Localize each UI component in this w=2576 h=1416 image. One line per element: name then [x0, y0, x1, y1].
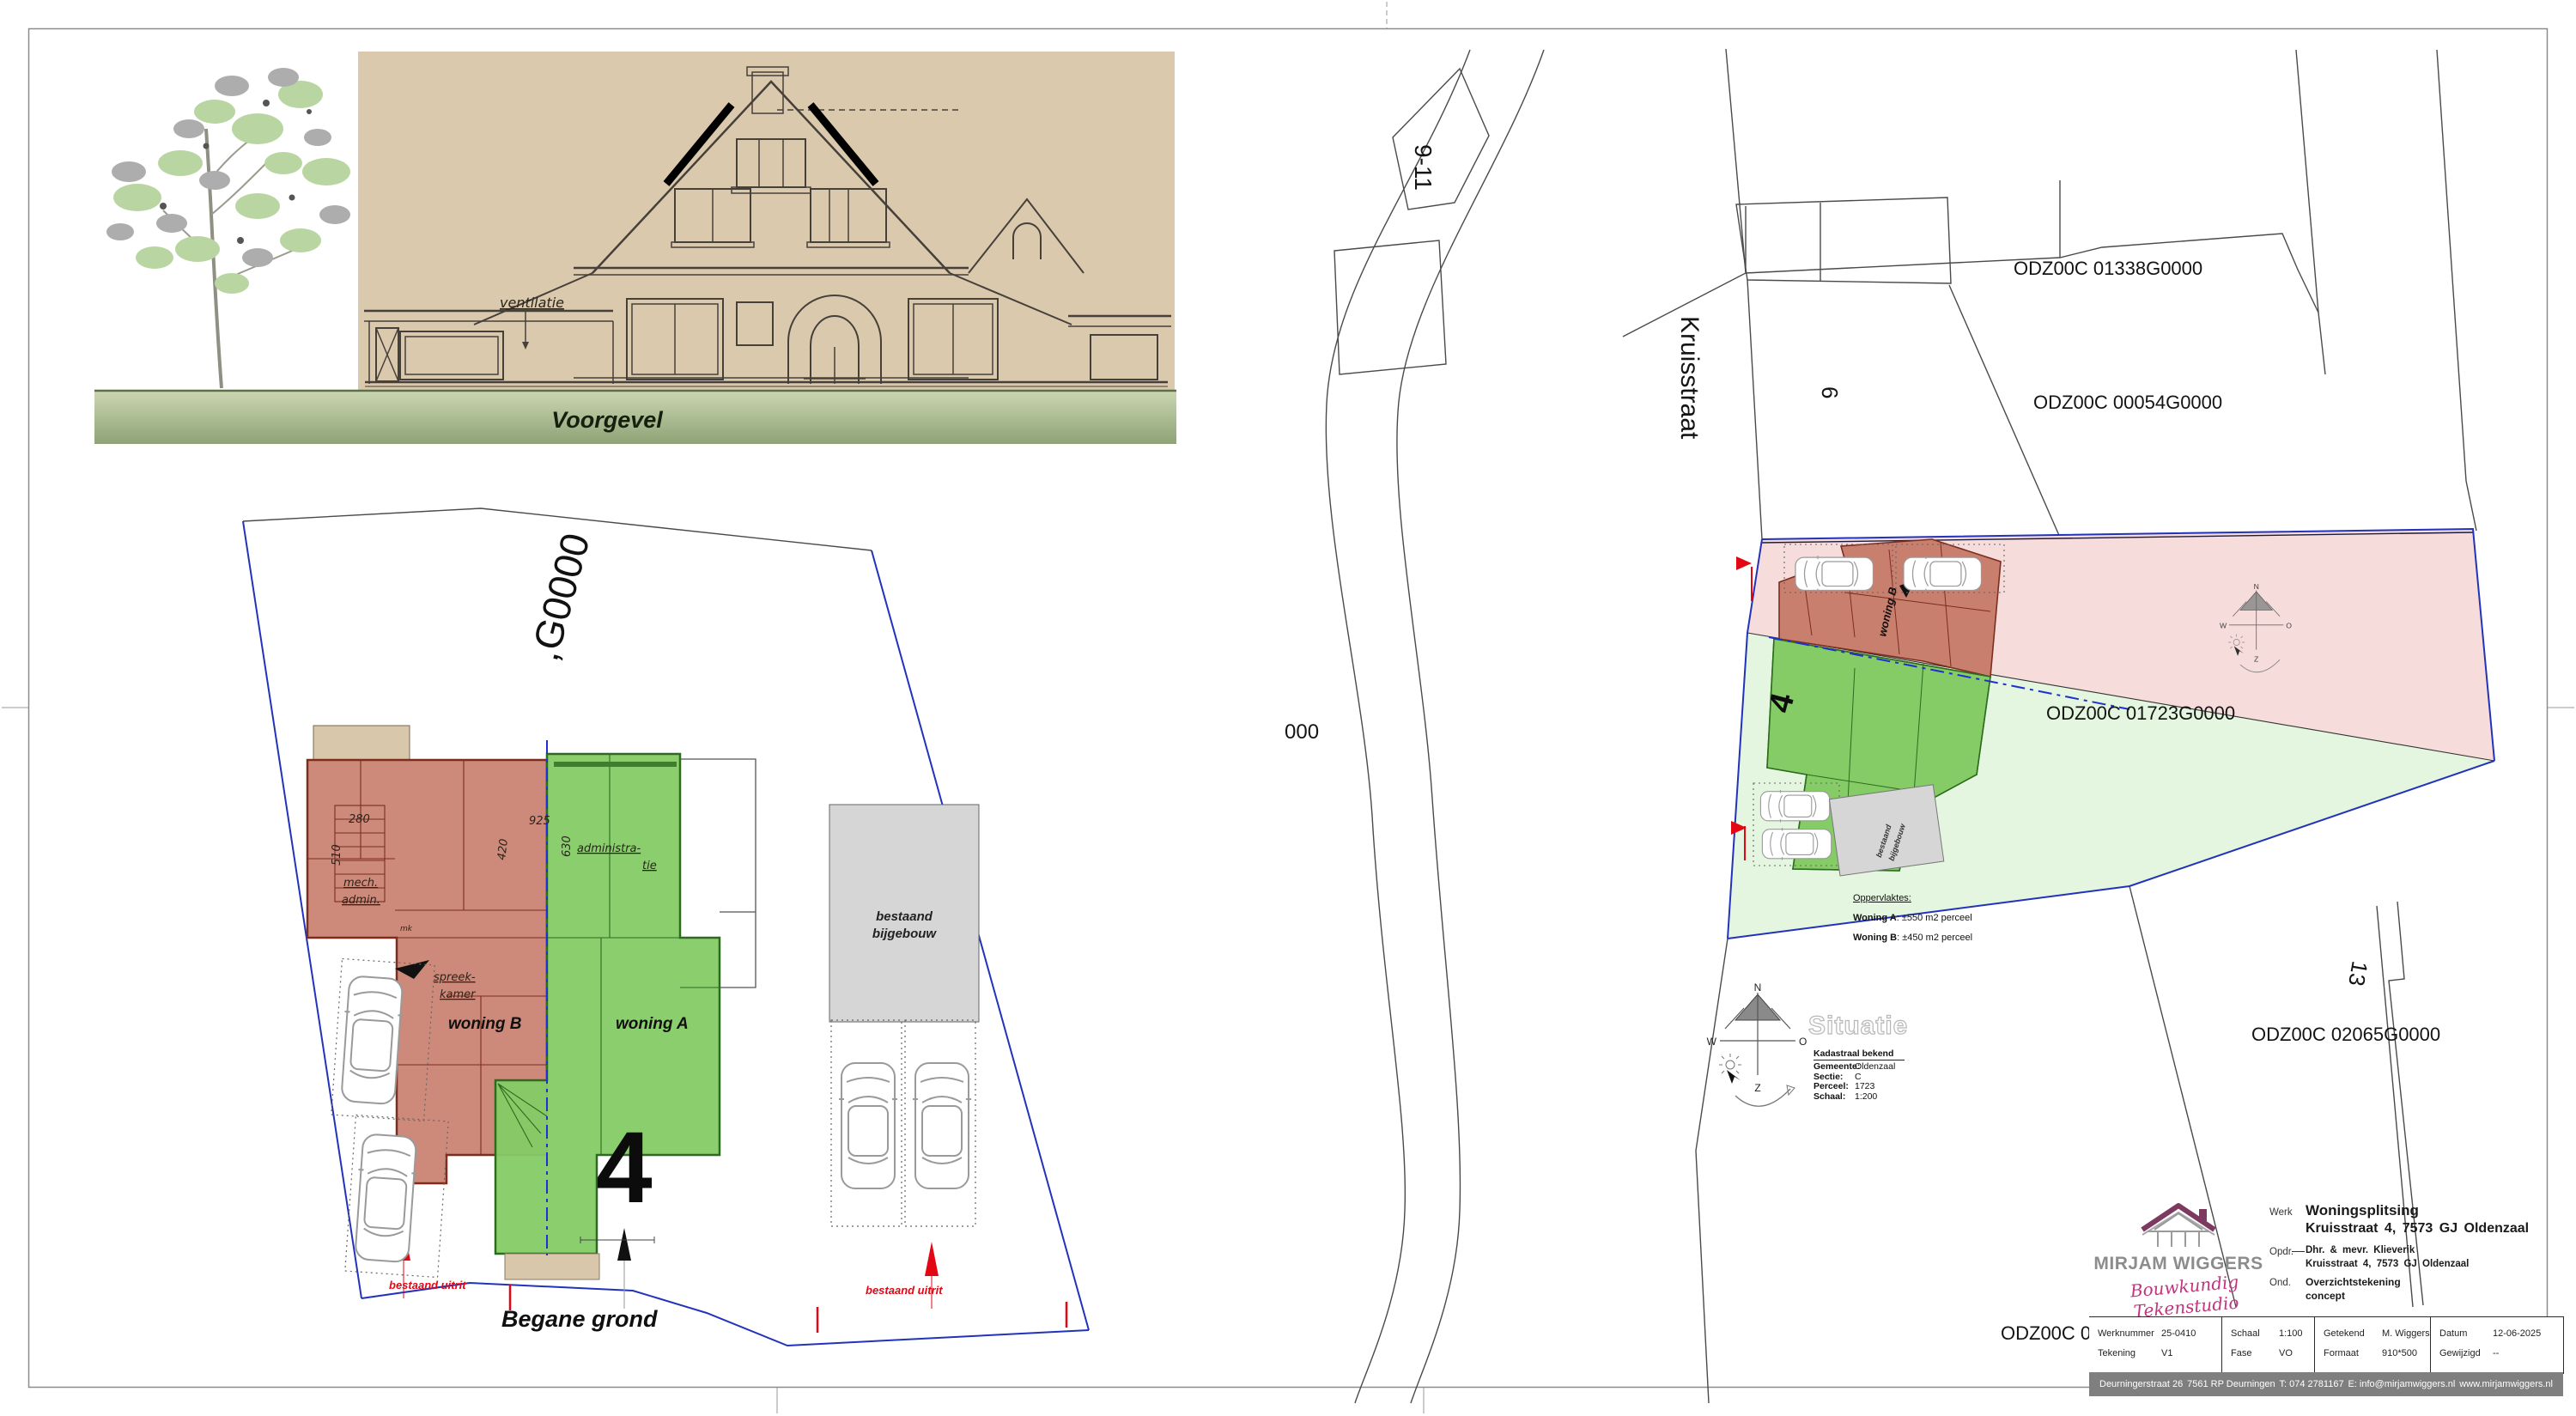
tb-field-label: Tekening — [2098, 1344, 2161, 1364]
svg-text:administra-: administra- — [577, 842, 641, 855]
tb-col-4: Datum12-06-2025 Gewijzigd-- — [2430, 1317, 2563, 1373]
tb-field-value: V1 — [2161, 1344, 2221, 1364]
tb-field-value: 12-06-2025 — [2493, 1324, 2563, 1344]
elevation-caption: Voorgevel — [551, 407, 663, 433]
tb-field-value: 910*500 — [2382, 1344, 2430, 1364]
tb-field-label: Gewijzigd — [2439, 1344, 2493, 1364]
tb-field-label: Formaat — [2324, 1344, 2382, 1364]
terrace — [505, 1254, 599, 1279]
tb-field-value: M. Wiggers — [2382, 1324, 2430, 1344]
tb-field: Schaal1:100 — [2231, 1324, 2314, 1344]
areas-heading: Oppervlaktes: — [1853, 893, 1911, 903]
parcel-label: ODZ00C 02065G0000 — [2251, 1024, 2440, 1045]
svg-text:630: 630 — [561, 836, 574, 857]
elevation-panel: ventilatie Voorgevel — [94, 52, 1176, 444]
title-block-table: Werknummer25-0410 TekeningV1 Schaal1:100… — [2089, 1316, 2564, 1374]
tb-field-label: Fase — [2231, 1344, 2279, 1364]
uitrit-label: bestaand uitrit — [389, 1279, 466, 1291]
svg-text:N: N — [1754, 981, 1762, 994]
parcel-label-partial: ODZ00C 0 — [2001, 1322, 2091, 1344]
area-woning-b: Woning B: ±450 m2 perceel — [1853, 933, 1999, 943]
kadastraal-table: Kadastraal bekend Gemeente:Oldenzaal Sec… — [1814, 1048, 1905, 1102]
tb-field: Datum12-06-2025 — [2439, 1324, 2563, 1344]
svg-text:Z: Z — [1754, 1082, 1760, 1094]
areas-block: Oppervlaktes: Woning A: ±550 m2 perceel … — [1853, 893, 1999, 943]
leader-line — [2292, 1251, 2305, 1252]
ventilatie-annotation: ventilatie — [500, 295, 564, 311]
svg-text:kamer: kamer — [440, 988, 477, 1001]
floorplan-caption: Begane grond — [501, 1306, 658, 1332]
tb-col-3: GetekendM. Wiggers Formaat910*500 — [2314, 1317, 2430, 1373]
tb-field: FaseVO — [2231, 1344, 2314, 1364]
svg-text:N: N — [2254, 582, 2259, 591]
car — [338, 975, 405, 1104]
uitrit-label: bestaand uitrit — [866, 1284, 943, 1297]
parcel-partial-label: ,G0000 — [521, 528, 598, 665]
tb-field-value: 25-0410 — [2161, 1324, 2221, 1344]
car — [913, 1063, 971, 1188]
ond-label: Ond. — [2269, 1278, 2291, 1288]
opdr-label: Opdr. — [2269, 1247, 2293, 1257]
footer-city: 7561 RP Deurningen — [2187, 1379, 2275, 1389]
area-a-label: Woning A — [1853, 913, 1897, 923]
kadastraal-row: Schaal:1:200 — [1814, 1092, 1905, 1103]
svg-text:spreek-: spreek- — [434, 971, 476, 984]
car — [1795, 556, 1874, 592]
ond-line1: Overzichtstekening — [2306, 1276, 2401, 1288]
exit-arrows — [397, 1226, 939, 1309]
tb-field-label: Getekend — [2324, 1324, 2382, 1344]
tb-field: TekeningV1 — [2098, 1344, 2221, 1364]
kadastraal-heading: Kadastraal bekend — [1814, 1048, 1905, 1060]
situatie-watermark: Situatie — [1808, 1012, 1908, 1041]
tree-illustration — [106, 68, 350, 388]
footer-phone: T: 074 2781167 — [2280, 1379, 2344, 1389]
title-block: MIRJAM WIGGERS Bouwkundig Tekenstudio We… — [2089, 1194, 2563, 1400]
svg-text:O: O — [1799, 1036, 1807, 1048]
svg-text:bestaand: bestaand — [876, 909, 933, 924]
svg-text:510: 510 — [331, 844, 343, 866]
svg-text:W: W — [1707, 1036, 1717, 1048]
parcel-label: ODZ00C 01723G0000 — [2046, 702, 2235, 724]
tb-field-label: Schaal — [2231, 1324, 2279, 1344]
floorplan: ,G0000 mech. — [243, 508, 1089, 1346]
housenum-13: 13 — [2343, 959, 2373, 988]
compass-rose: N W O Z — [1707, 981, 1807, 1106]
kadastraal-row: Gemeente:Oldenzaal — [1814, 1062, 1905, 1073]
kadastraal-label: Gemeente: — [1814, 1062, 1855, 1073]
kadastraal-label: Schaal: — [1814, 1092, 1855, 1103]
ond-line2: concept — [2306, 1290, 2345, 1302]
tb-field: GetekendM. Wiggers — [2324, 1324, 2430, 1344]
parcel-label-partial: 000 — [1285, 720, 1319, 744]
footer-website: www.mirjamwiggers.nl — [2459, 1379, 2553, 1389]
tb-field-value: 1:100 — [2279, 1324, 2314, 1344]
tb-field: Gewijzigd-- — [2439, 1344, 2563, 1364]
kadastraal-value: 1723 — [1855, 1082, 1905, 1092]
car — [1760, 790, 1829, 822]
car — [839, 1063, 897, 1188]
svg-text:mech.: mech. — [343, 877, 378, 890]
parcel-label: ODZ00C 01338G0000 — [2014, 258, 2202, 279]
svg-text:woning A: woning A — [616, 1015, 689, 1033]
drawing-sheet: ventilatie Voorgevel ,G0000 — [0, 0, 2576, 1416]
svg-text:280: 280 — [349, 813, 370, 826]
tb-col-1: Werknummer25-0410 TekeningV1 — [2089, 1317, 2221, 1373]
bijgebouw: bestaand bijgebouw — [829, 805, 979, 1022]
werk-label: Werk — [2269, 1207, 2293, 1218]
street-label: Kruisstraat — [1675, 316, 1704, 440]
car — [1762, 828, 1831, 860]
kadastraal-value: 1:200 — [1855, 1092, 1905, 1103]
car — [352, 1133, 419, 1262]
tb-field: Werknummer25-0410 — [2098, 1324, 2221, 1344]
brand-logo-house-icon — [2136, 1200, 2221, 1250]
tb-field-label: Werknummer — [2098, 1324, 2161, 1344]
werk-line2: Kruisstraat 4, 7573 GJ Oldenzaal — [2306, 1221, 2529, 1237]
tb-field: Formaat910*500 — [2324, 1344, 2430, 1364]
site-bijgebouw: bestaand bijgebouw — [1829, 785, 1943, 876]
svg-text:woning B: woning B — [448, 1015, 522, 1033]
car — [1904, 556, 1982, 592]
svg-text:420: 420 — [495, 838, 511, 860]
parcel-label: ODZ00C 00054G0000 — [2033, 392, 2222, 413]
svg-text:W: W — [2220, 621, 2227, 629]
svg-text:925: 925 — [529, 815, 550, 828]
svg-text:admin.: admin. — [342, 894, 380, 907]
svg-text:bijgebouw: bijgebouw — [872, 927, 937, 941]
footer-address: Deurningerstraat 26 — [2099, 1379, 2183, 1389]
canopy — [313, 726, 410, 760]
area-b-label: Woning B — [1853, 933, 1897, 943]
house-number: 4 — [596, 1111, 653, 1225]
area-woning-a: Woning A: ±550 m2 perceel — [1853, 913, 1999, 923]
housenum-6: 6 — [1817, 386, 1843, 398]
area-b-value: : ±450 m2 perceel — [1897, 933, 1972, 943]
opdr-line1: Dhr. & mevr. Klieverik — [2306, 1245, 2415, 1255]
housenum-911: 9-11 — [1410, 144, 1437, 191]
opdr-line2: Kruisstraat 4, 7573 GJ Oldenzaal — [2306, 1259, 2469, 1269]
footer-email: E: info@mirjamwiggers.nl — [2348, 1379, 2455, 1389]
svg-text:mk: mk — [400, 925, 413, 933]
kadastraal-label: Perceel: — [1814, 1082, 1855, 1092]
werk-line1: Woningsplitsing — [2306, 1202, 2419, 1219]
tb-col-2: Schaal1:100 FaseVO — [2221, 1317, 2314, 1373]
svg-text:tie: tie — [642, 860, 657, 872]
kadastraal-row: Perceel:1723 — [1814, 1082, 1905, 1092]
tb-field-value: VO — [2279, 1344, 2314, 1364]
svg-text:O: O — [2286, 621, 2292, 629]
tb-field-value: -- — [2493, 1344, 2563, 1364]
elevation-paper — [358, 52, 1175, 391]
tb-field-label: Datum — [2439, 1324, 2493, 1344]
kadastraal-value: Oldenzaal — [1855, 1062, 1905, 1073]
area-a-value: : ±550 m2 perceel — [1897, 913, 1972, 923]
svg-text:Z: Z — [2254, 654, 2258, 663]
title-block-footer: Deurningerstraat 26 7561 RP Deurningen T… — [2089, 1372, 2563, 1396]
